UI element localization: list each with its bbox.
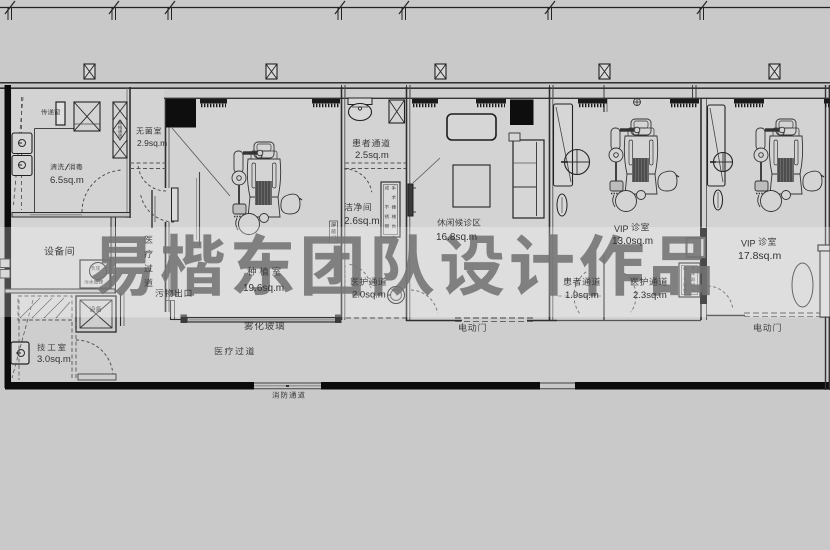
svg-text:2.3sq.m: 2.3sq.m [633, 290, 667, 301]
svg-text:17.8sq.m: 17.8sq.m [738, 250, 781, 262]
svg-text:6.5sq.m: 6.5sq.m [50, 175, 84, 186]
svg-text:16.8sq.m: 16.8sq.m [436, 232, 477, 243]
svg-text:1.9sq.m: 1.9sq.m [565, 290, 599, 301]
svg-text:2.6sq.m: 2.6sq.m [344, 216, 380, 227]
svg-text:3.0sq.m: 3.0sq.m [37, 354, 71, 365]
svg-text:VIP: VIP [741, 239, 756, 249]
svg-text:2.9sq.m: 2.9sq.m [137, 138, 167, 148]
svg-text:13.0sq.m: 13.0sq.m [612, 236, 653, 247]
svg-text:2.0sq.m: 2.0sq.m [352, 290, 386, 301]
svg-text:19.6sq.m: 19.6sq.m [243, 283, 284, 294]
svg-text:2.5sq.m: 2.5sq.m [355, 150, 389, 161]
svg-text:VIP: VIP [614, 224, 629, 234]
